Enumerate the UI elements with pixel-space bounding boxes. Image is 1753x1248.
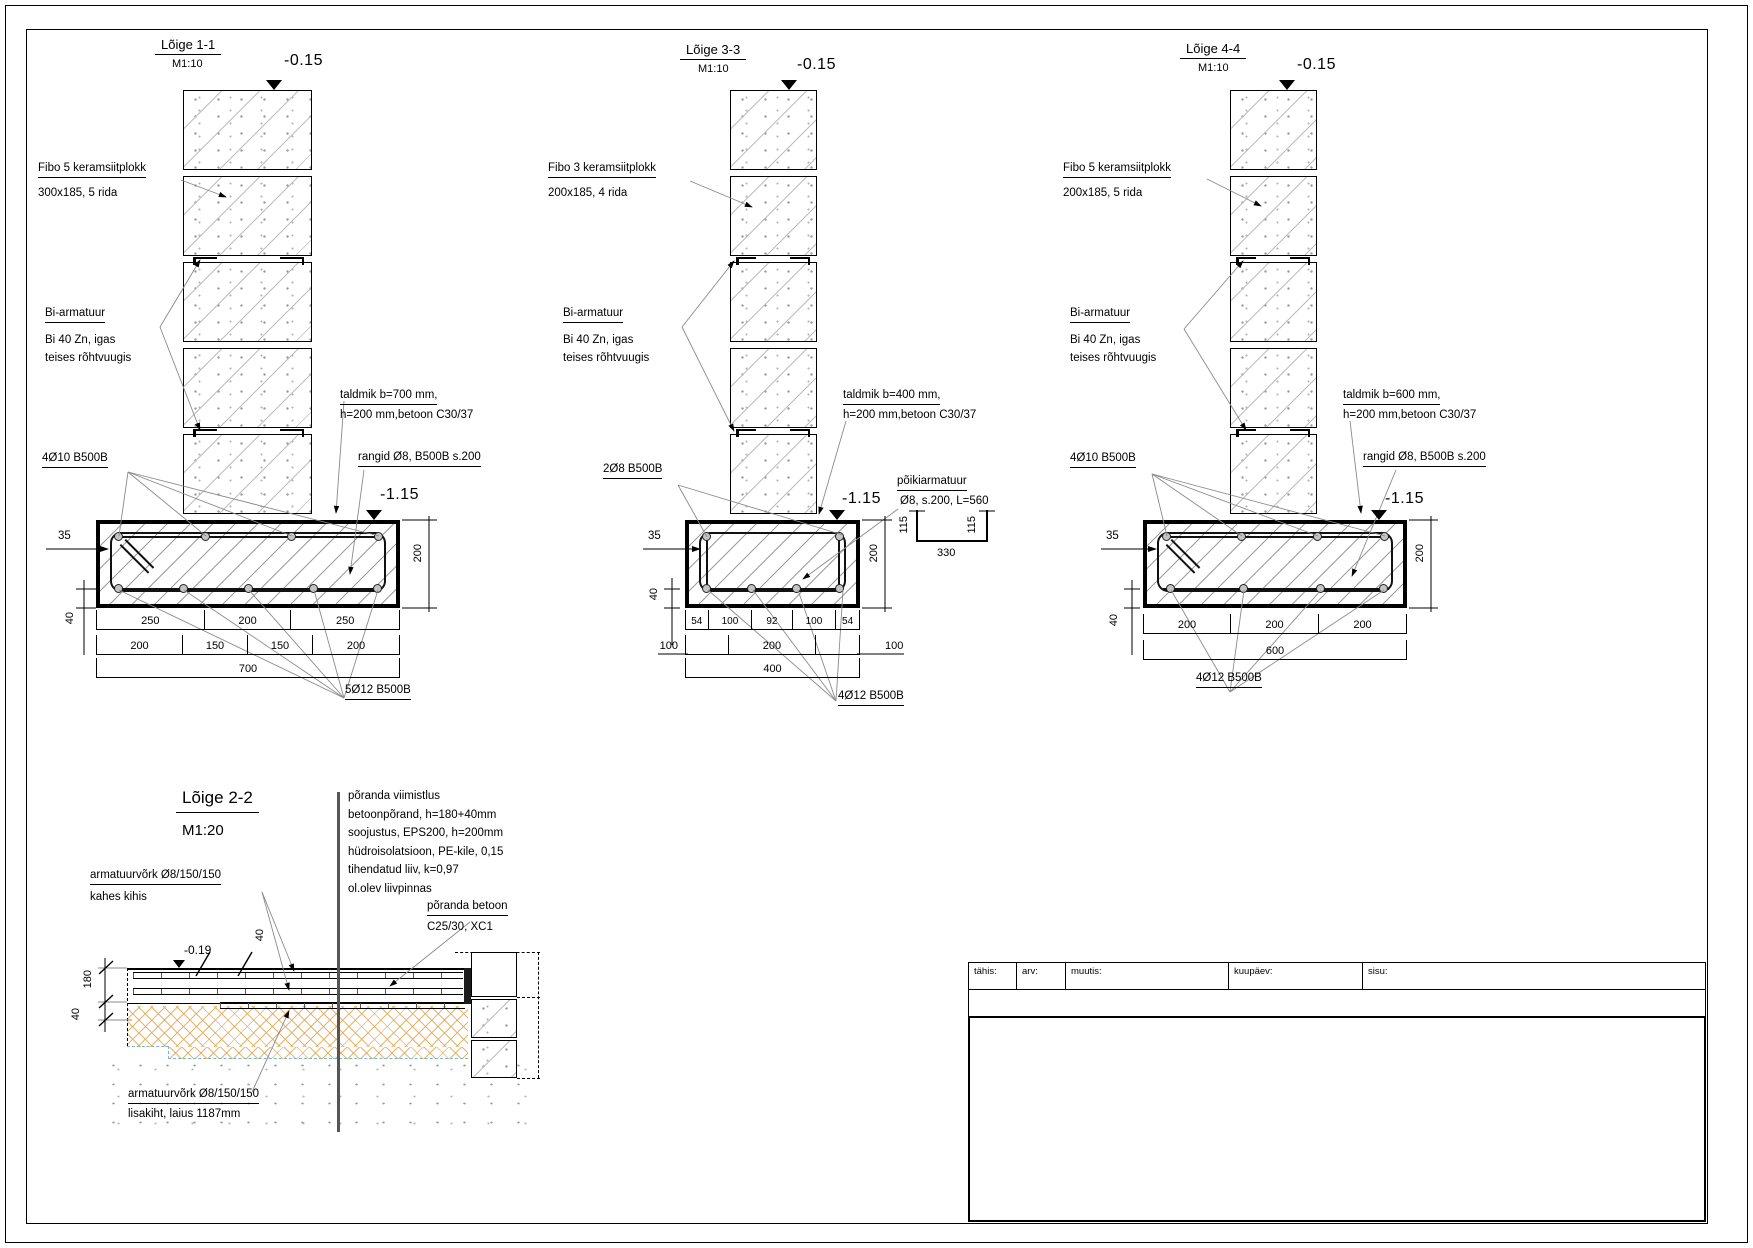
masonry-block bbox=[1230, 262, 1317, 342]
rebar-dot bbox=[792, 584, 801, 593]
drawing-sheet: Lõige 1-1 M1:10 -0.15 Fibo 5 keramsiitpl… bbox=[0, 0, 1753, 1248]
level-marker-icon bbox=[1279, 80, 1295, 90]
rangid-label: rangid Ø8, B500B s.200 bbox=[1363, 451, 1486, 467]
dim-40-vertical: 40 bbox=[64, 612, 76, 624]
rebar-dot bbox=[114, 584, 123, 593]
dim-180-slab: 180 bbox=[82, 970, 94, 988]
floor-concrete-label-line2: C25/30, XC1 bbox=[427, 921, 493, 934]
bottom-bars-label: 4Ø12 B500B bbox=[838, 690, 904, 706]
rebar-dot bbox=[1380, 532, 1389, 541]
rebar-dot bbox=[1162, 532, 1171, 541]
dim-label: 200 bbox=[130, 640, 148, 652]
dim-200-vertical: 200 bbox=[1414, 544, 1426, 562]
masonry-block bbox=[1230, 90, 1317, 170]
bottom-bar-line bbox=[1163, 588, 1389, 590]
bi-reinforcement-mark bbox=[1290, 429, 1310, 438]
dim-label: 54 bbox=[691, 616, 702, 627]
dim-segment: 250 bbox=[291, 610, 400, 630]
masonry-block bbox=[183, 434, 312, 514]
poiki-label-line2: Ø8, s.200, L=560 bbox=[900, 495, 989, 508]
bi-reinforcement-mark bbox=[1290, 257, 1310, 266]
dim-segment: 700 bbox=[96, 658, 400, 678]
rebar-dot bbox=[179, 584, 188, 593]
floor-concrete-label-line1: põranda betoon bbox=[427, 900, 508, 916]
dim-segment: 400 bbox=[685, 658, 860, 678]
hydro-membrane-dashed bbox=[168, 1058, 468, 1059]
revision-col-tahis: tähis: bbox=[969, 963, 1017, 989]
dim-segment: 200 bbox=[313, 635, 400, 655]
bi-reinforcement-mark bbox=[1236, 257, 1256, 266]
dim-segment: 100 bbox=[793, 610, 837, 630]
bi-label-line1: Bi-armatuur bbox=[563, 307, 623, 323]
continuation-dashed-line bbox=[538, 952, 539, 1078]
layer-line: betoonpõrand, h=180+40mm bbox=[348, 806, 503, 825]
masonry-block bbox=[730, 262, 817, 342]
rebar-dot bbox=[702, 584, 711, 593]
masonry-block bbox=[730, 176, 817, 256]
dim-200-vertical: 200 bbox=[412, 544, 424, 562]
dim-label: 150 bbox=[271, 640, 289, 652]
mesh-layer-extra bbox=[220, 1002, 465, 1009]
level-marker-icon bbox=[1371, 510, 1387, 520]
top-bars-label: 4Ø10 B500B bbox=[42, 452, 108, 468]
bi-reinforcement-mark bbox=[790, 257, 810, 266]
rebar-dot bbox=[114, 532, 123, 541]
level-marker-icon bbox=[781, 80, 797, 90]
dim-label: 92 bbox=[766, 616, 777, 627]
rebar-dot bbox=[1313, 532, 1322, 541]
bi-label-line3: teises rõhtvuugis bbox=[1070, 352, 1156, 365]
end-bar-line bbox=[706, 536, 708, 588]
masonry-block bbox=[730, 434, 817, 514]
dim-label: 400 bbox=[763, 663, 781, 675]
rebar-dot bbox=[835, 532, 844, 541]
dim-40-extra: 40 bbox=[70, 1008, 82, 1020]
bi-label-line3: teises rõhtvuugis bbox=[45, 352, 131, 365]
dim-40-vertical: 40 bbox=[648, 588, 660, 600]
section-3-title: Lõige 3-3 bbox=[680, 42, 746, 60]
bi-label-line3: teises rõhtvuugis bbox=[563, 352, 649, 365]
section-4-level-bottom: -1.15 bbox=[1385, 490, 1424, 508]
revision-col-kuupaev: kuupäev: bbox=[1229, 963, 1363, 989]
mesh-layer-bottom bbox=[133, 988, 463, 995]
rebar-dot bbox=[374, 532, 383, 541]
bottom-bar-line bbox=[706, 588, 840, 590]
section-2-title: Lõige 2-2 bbox=[176, 788, 259, 813]
dim-segment: 200 bbox=[1143, 614, 1231, 634]
revision-table: tähis: arv: muutis: kuupäev: sisu: bbox=[968, 962, 1706, 1017]
poiki-label-line1: põikiarmatuur bbox=[897, 475, 967, 491]
dim-label: 100 bbox=[660, 640, 678, 652]
level-marker-icon bbox=[266, 80, 282, 90]
dim-segment: 200 bbox=[729, 635, 817, 655]
dim-label: 150 bbox=[206, 640, 224, 652]
bi-label-line1: Bi-armatuur bbox=[45, 307, 105, 323]
dim-35: 35 bbox=[648, 530, 661, 543]
slab-edge-strip bbox=[464, 968, 471, 1004]
dim-segment: 54 bbox=[836, 610, 860, 630]
channel-dim-right: 115 bbox=[966, 516, 978, 534]
s1-dim-total: 700 bbox=[96, 658, 400, 678]
dim-segment: 200 bbox=[205, 610, 292, 630]
mesh-label-line2: kahes kihis bbox=[90, 891, 147, 904]
level-marker-icon bbox=[829, 510, 845, 520]
layer-line: ol.olev liivpinnas bbox=[348, 880, 503, 899]
layer-line: soojustus, EPS200, h=200mm bbox=[348, 824, 503, 843]
slab-left-dashed-edge bbox=[127, 968, 128, 1046]
rebar-dot bbox=[244, 584, 253, 593]
rebar-dot bbox=[1166, 584, 1175, 593]
rebar-dot bbox=[287, 532, 296, 541]
taldmik-label-line2: h=200 mm,betoon C30/37 bbox=[843, 409, 976, 422]
eps-insulation bbox=[127, 1006, 468, 1047]
s1-dim-row1: 250 200 250 bbox=[96, 610, 400, 630]
revision-col-arv: arv: bbox=[1017, 963, 1066, 989]
bi-reinforcement-mark bbox=[193, 429, 217, 438]
mesh-label-line1: armatuurvõrk Ø8/150/150 bbox=[90, 869, 221, 885]
taldmik-label-line2: h=200 mm,betoon C30/37 bbox=[340, 409, 473, 422]
level-marker-icon bbox=[366, 510, 382, 520]
dim-label: 250 bbox=[141, 615, 159, 627]
masonry-block bbox=[730, 90, 817, 170]
s4-dim-total: 600 bbox=[1143, 640, 1407, 660]
fibo-label-line1: Fibo 3 keramsiitplokk bbox=[548, 162, 656, 178]
dim-segment: 250 bbox=[96, 610, 205, 630]
level-marker-icon bbox=[173, 960, 185, 968]
bi-label-line2: Bi 40 Zn, igas bbox=[563, 334, 633, 347]
fibo-label-line1: Fibo 5 keramsiitplokk bbox=[1063, 162, 1171, 178]
rangid-label: rangid Ø8, B500B s.200 bbox=[358, 451, 481, 467]
section-1-level-top: -0.15 bbox=[284, 52, 323, 70]
s4-dim-row1: 200 200 200 bbox=[1143, 614, 1407, 634]
continuation-dashed-line bbox=[455, 952, 540, 953]
mesh2-label-line2: lisakiht, laius 1187mm bbox=[128, 1108, 240, 1121]
layer-line: põranda viimistlus bbox=[348, 787, 503, 806]
s3-dim-row2: 100 200 100 bbox=[685, 635, 860, 655]
dim-label: 600 bbox=[1266, 645, 1284, 657]
dim-segment: 92 bbox=[752, 610, 792, 630]
top-bar-line bbox=[1163, 536, 1389, 538]
dim-segment: 100 bbox=[709, 610, 753, 630]
channel-dim-left: 115 bbox=[898, 516, 910, 534]
bi-reinforcement-mark bbox=[280, 257, 304, 266]
rebar-dot bbox=[747, 584, 756, 593]
section-1-level-bottom: -1.15 bbox=[380, 486, 419, 504]
masonry-block bbox=[471, 1040, 517, 1078]
masonry-block bbox=[183, 176, 312, 256]
taldmik-label-line2: h=200 mm,betoon C30/37 bbox=[1343, 409, 1476, 422]
bi-label-line2: Bi 40 Zn, igas bbox=[45, 334, 115, 347]
section-3-scale: M1:10 bbox=[698, 63, 729, 75]
rebar-dot bbox=[373, 584, 382, 593]
masonry-block bbox=[183, 348, 312, 428]
rebar-dot bbox=[835, 584, 844, 593]
mesh-layer-top bbox=[133, 972, 463, 979]
bi-label-line1: Bi-armatuur bbox=[1070, 307, 1130, 323]
dim-label: 700 bbox=[239, 663, 257, 675]
bottom-bars-label: 5Ø12 B500B bbox=[345, 684, 411, 700]
continuation-dashed-line bbox=[517, 997, 540, 998]
dim-label: 250 bbox=[336, 615, 354, 627]
dim-35: 35 bbox=[58, 530, 71, 543]
stirrup-outline bbox=[699, 532, 846, 592]
dim-segment: 100 bbox=[685, 635, 729, 655]
dim-label: 200 bbox=[1353, 619, 1371, 631]
section-2-scale: M1:20 bbox=[182, 822, 224, 839]
rebar-dot bbox=[702, 532, 711, 541]
dim-label: 200 bbox=[1265, 619, 1283, 631]
taldmik-label-line1: taldmik b=600 mm, bbox=[1343, 389, 1440, 405]
bi-reinforcement-mark bbox=[736, 429, 756, 438]
dim-label: 54 bbox=[842, 616, 853, 627]
fibo-label-line2: 300x185, 5 rida bbox=[38, 187, 117, 200]
taldmik-label-line1: taldmik b=700 mm, bbox=[340, 389, 437, 405]
revision-col-sisu: sisu: bbox=[1363, 963, 1705, 989]
layer-line: tihendatud liiv, k=0,97 bbox=[348, 861, 503, 880]
revision-header-row: tähis: arv: muutis: kuupäev: sisu: bbox=[969, 963, 1705, 990]
bi-label-line2: Bi 40 Zn, igas bbox=[1070, 334, 1140, 347]
fibo-label-line1: Fibo 5 keramsiitplokk bbox=[38, 162, 146, 178]
dim-40-vertical: 40 bbox=[1108, 614, 1120, 626]
rebar-dot bbox=[1379, 584, 1388, 593]
dim-label: 100 bbox=[806, 616, 823, 627]
section-1-title: Lõige 1-1 bbox=[155, 37, 221, 55]
revision-empty-row bbox=[969, 990, 1705, 1016]
bi-reinforcement-mark bbox=[193, 257, 217, 266]
end-bar-line bbox=[838, 536, 840, 588]
dim-35: 35 bbox=[1106, 530, 1119, 543]
foundation-block-outline bbox=[471, 952, 517, 997]
fibo-label-line2: 200x185, 4 rida bbox=[548, 187, 627, 200]
dim-label: 200 bbox=[763, 640, 781, 652]
masonry-block bbox=[471, 999, 517, 1038]
dim-segment: 150 bbox=[248, 635, 313, 655]
dim-label: 200 bbox=[1178, 619, 1196, 631]
continuation-dashed-line bbox=[517, 1078, 540, 1079]
masonry-block bbox=[183, 90, 312, 170]
masonry-block bbox=[183, 262, 312, 342]
masonry-block bbox=[1230, 176, 1317, 256]
dim-segment: 200 bbox=[1319, 614, 1407, 634]
channel-dim-mid: 330 bbox=[937, 547, 955, 560]
section-3-level-top: -0.15 bbox=[797, 56, 836, 74]
dim-segment: 200 bbox=[1231, 614, 1319, 634]
rebar-dot bbox=[1237, 532, 1246, 541]
masonry-block bbox=[1230, 434, 1317, 514]
title-block-box bbox=[968, 1016, 1706, 1222]
masonry-block bbox=[730, 348, 817, 428]
dim-40-topping: 40 bbox=[254, 929, 266, 941]
layer-line: hüdroisolatsioon, PE-kile, 0,15 bbox=[348, 843, 503, 862]
taldmik-label-line1: taldmik b=400 mm, bbox=[843, 389, 940, 405]
floor-layers-list: põranda viimistlus betoonpõrand, h=180+4… bbox=[348, 787, 503, 898]
s3-dim-row1: 54 100 92 100 54 bbox=[685, 610, 860, 630]
section-4-title: Lõige 4-4 bbox=[1180, 41, 1246, 59]
dim-200-vertical: 200 bbox=[868, 544, 880, 562]
masonry-block bbox=[1230, 348, 1317, 428]
top-bar-line bbox=[118, 536, 378, 538]
section-4-level-top: -0.15 bbox=[1297, 56, 1336, 74]
mesh2-label-line1: armatuurvõrk Ø8/150/150 bbox=[128, 1088, 259, 1104]
dim-segment: 100 bbox=[816, 635, 860, 655]
s3-dim-total: 400 bbox=[685, 658, 860, 678]
section-3-level-bottom: -1.15 bbox=[842, 490, 881, 508]
leader-centerline bbox=[337, 792, 340, 1132]
top-bars-label: 2Ø8 B500B bbox=[603, 463, 662, 479]
bottom-bars-label: 4Ø12 B500B bbox=[1196, 672, 1262, 688]
bi-reinforcement-mark bbox=[736, 257, 756, 266]
rebar-dot bbox=[201, 532, 210, 541]
dim-label: 200 bbox=[238, 615, 256, 627]
section-4-scale: M1:10 bbox=[1198, 62, 1229, 74]
stirrup-outline bbox=[110, 532, 386, 592]
bi-reinforcement-mark bbox=[790, 429, 810, 438]
dim-label: 100 bbox=[722, 616, 739, 627]
bi-reinforcement-mark bbox=[280, 429, 304, 438]
section-1-scale: M1:10 bbox=[172, 58, 203, 70]
rebar-dot bbox=[1239, 584, 1248, 593]
rebar-dot bbox=[309, 584, 318, 593]
fibo-label-line2: 200x185, 5 rida bbox=[1063, 187, 1142, 200]
section-2-level: -0.19 bbox=[184, 944, 211, 957]
rebar-dot bbox=[1316, 584, 1325, 593]
hydro-membrane-dashed bbox=[127, 1046, 169, 1047]
revision-col-muutis: muutis: bbox=[1066, 963, 1229, 989]
dim-segment: 54 bbox=[685, 610, 709, 630]
top-bars-label: 4Ø10 B500B bbox=[1070, 452, 1136, 468]
dim-label: 200 bbox=[347, 640, 365, 652]
dim-segment: 200 bbox=[96, 635, 183, 655]
dim-segment: 150 bbox=[183, 635, 248, 655]
bi-reinforcement-mark bbox=[1236, 429, 1256, 438]
s1-dim-row2: 200 150 150 200 bbox=[96, 635, 400, 655]
dim-label: 100 bbox=[885, 640, 903, 652]
dim-segment: 600 bbox=[1143, 640, 1407, 660]
